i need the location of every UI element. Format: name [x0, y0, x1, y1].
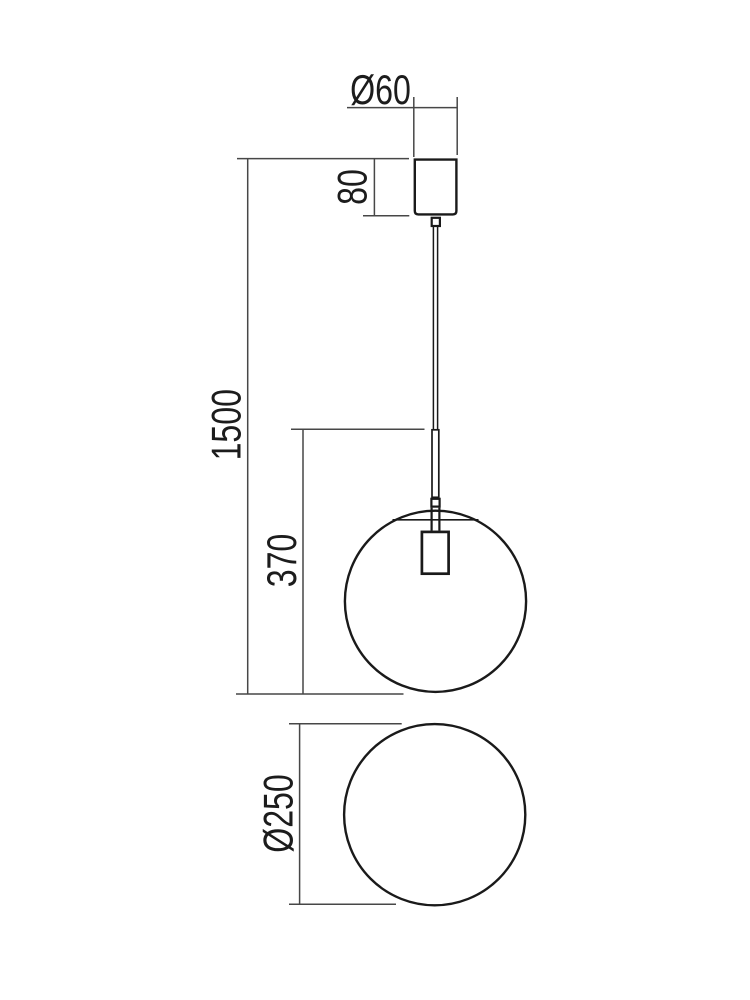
svg-text:Ø250: Ø250: [254, 774, 301, 853]
svg-text:80: 80: [328, 169, 375, 205]
svg-text:370: 370: [258, 534, 305, 588]
svg-text:1500: 1500: [202, 389, 249, 460]
svg-text:Ø60: Ø60: [350, 66, 411, 113]
